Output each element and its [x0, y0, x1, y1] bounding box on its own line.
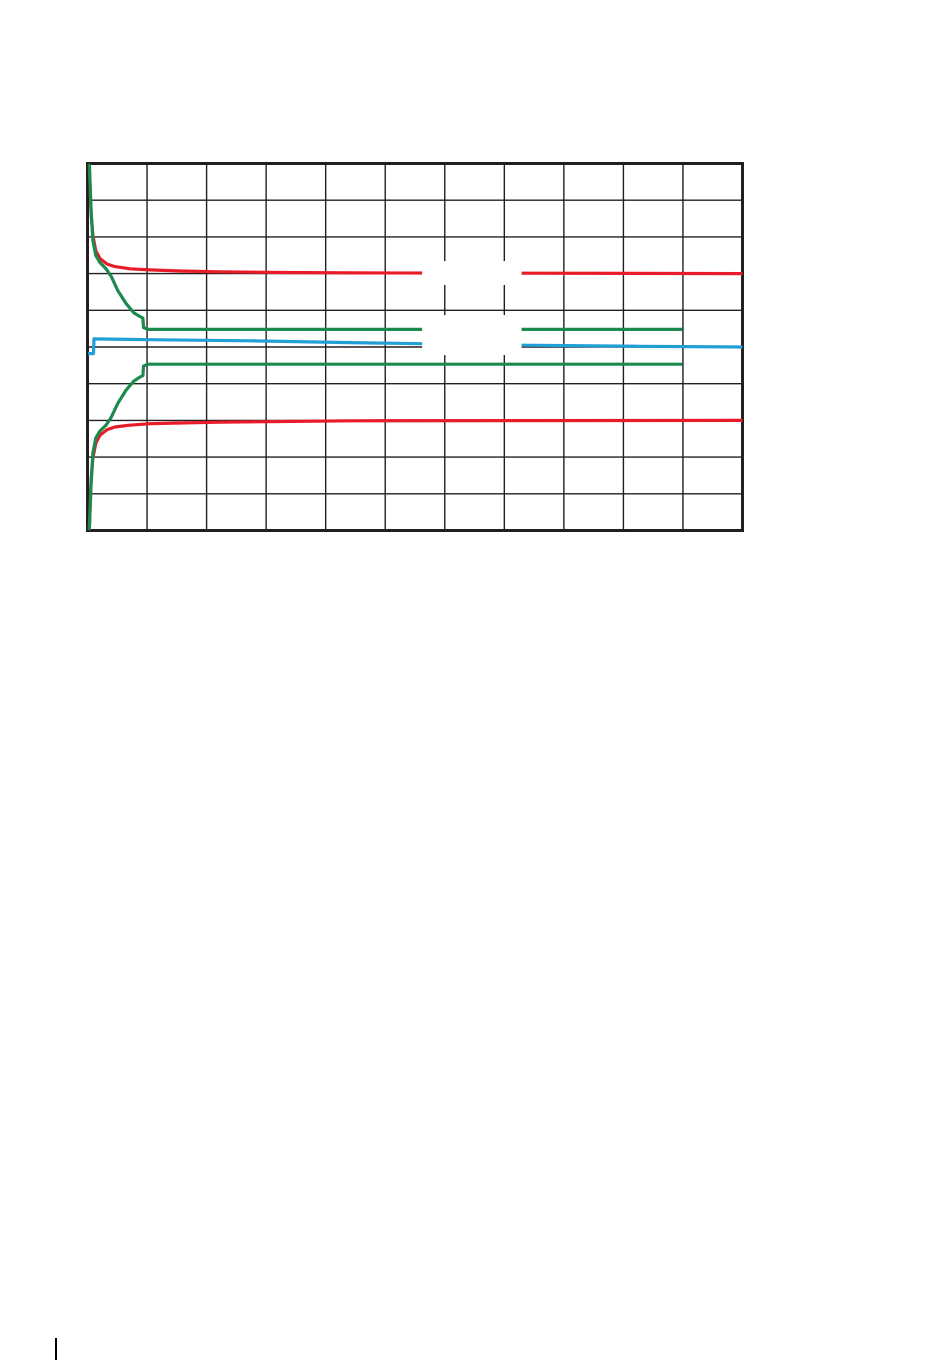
series-red-lower: [89, 420, 742, 530]
label-gap-patch: [422, 315, 521, 355]
series-red-upper: [89, 164, 742, 274]
label-gap-patch: [422, 261, 521, 285]
line-chart: [0, 0, 950, 1360]
series-blue: [88, 339, 742, 354]
page-corner-mark: [55, 1338, 57, 1360]
document-page: [0, 0, 950, 1360]
